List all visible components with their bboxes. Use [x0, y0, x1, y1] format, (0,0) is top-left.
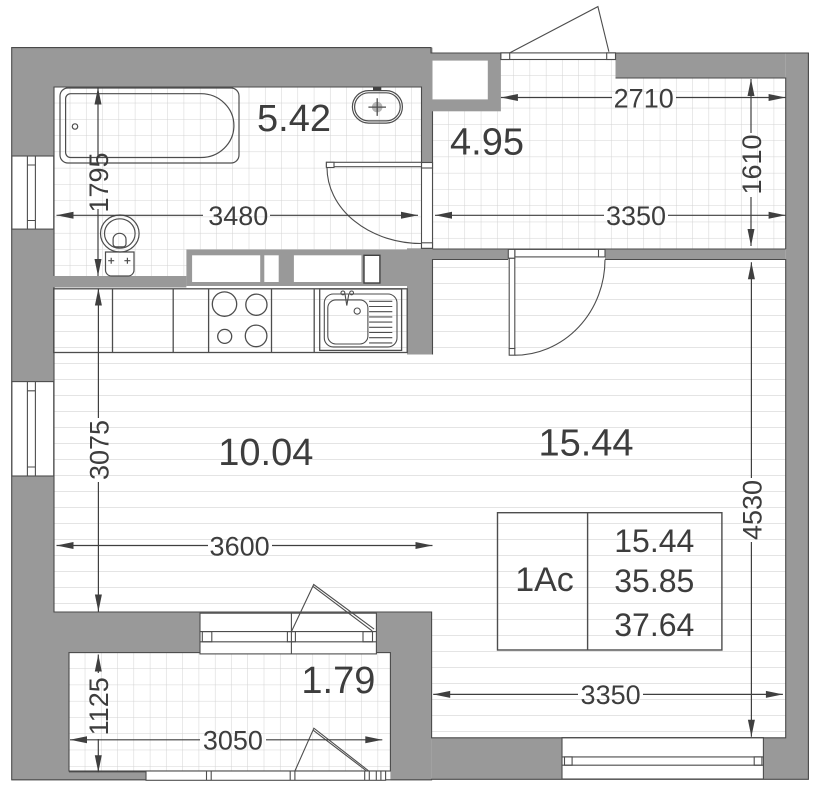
svg-text:3075: 3075	[84, 420, 114, 480]
svg-text:2710: 2710	[614, 83, 674, 113]
svg-text:4530: 4530	[737, 480, 767, 540]
svg-text:1610: 1610	[737, 134, 767, 194]
svg-text:3050: 3050	[203, 726, 263, 756]
svg-text:37.64: 37.64	[614, 607, 694, 643]
svg-text:1125: 1125	[84, 677, 114, 735]
svg-text:35.85: 35.85	[614, 563, 694, 599]
svg-text:15.44: 15.44	[538, 423, 633, 465]
svg-text:4.95: 4.95	[450, 121, 524, 163]
svg-text:15.44: 15.44	[614, 523, 694, 559]
svg-text:3350: 3350	[581, 680, 641, 710]
svg-text:1795: 1795	[84, 152, 114, 212]
svg-text:3480: 3480	[208, 201, 268, 231]
svg-text:3600: 3600	[210, 531, 270, 561]
svg-text:1.79: 1.79	[301, 660, 375, 702]
svg-text:1Ac: 1Ac	[515, 561, 574, 599]
svg-text:10.04: 10.04	[218, 432, 313, 474]
svg-text:3350: 3350	[606, 201, 666, 231]
svg-text:5.42: 5.42	[257, 98, 331, 140]
